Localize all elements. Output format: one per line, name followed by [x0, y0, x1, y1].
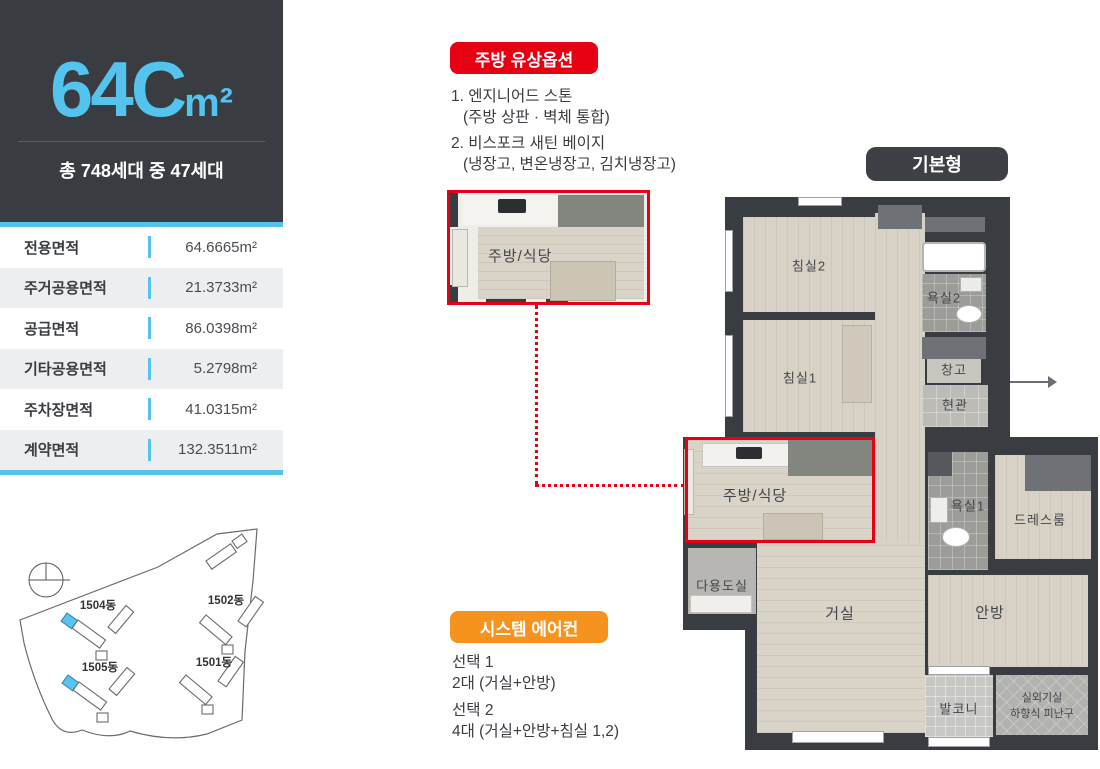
- washer: [690, 595, 752, 613]
- area-label: 주차장면적: [24, 399, 134, 420]
- option-title: 2. 비스포크 새틴 베이지: [451, 133, 676, 154]
- hallway-floor: [875, 213, 925, 439]
- building-label: 1504동: [80, 599, 117, 612]
- area-label: 주거공용면적: [24, 277, 134, 298]
- living-floor: [757, 543, 925, 733]
- building-footprint: [200, 615, 232, 645]
- building-footprint: [206, 544, 236, 569]
- site-plan-svg: 1504동 1502동 1505동: [10, 523, 272, 763]
- unit-subtitle: 총 748세대 중 47세대: [0, 157, 283, 183]
- table-row: 주차장면적 41.0315m²: [0, 389, 283, 430]
- room-label-escape-hatch: 하향식 피난구: [1010, 705, 1074, 721]
- table-row: 주거공용면적 21.3733m²: [0, 268, 283, 309]
- toilet: [942, 527, 970, 547]
- connector-dotted-vertical: [535, 305, 538, 485]
- area-label: 기타공용면적: [24, 358, 134, 379]
- room-label-bathroom1: 욕실1: [951, 496, 985, 515]
- compass-icon: [29, 563, 70, 597]
- building-cluster-1504: [61, 606, 134, 660]
- option-title: 1. 엔지니어드 스톤: [451, 86, 676, 107]
- bathroom1-cabinet: [928, 452, 952, 476]
- room-label-master: 안방: [975, 602, 1005, 623]
- option-detail: (냉장고, 변온냉장고, 김치냉장고): [451, 154, 676, 175]
- kitchen-option-item: 2. 비스포크 새틴 베이지 (냉장고, 변온냉장고, 김치냉장고): [451, 133, 676, 175]
- room-label-entrance: 현관: [942, 395, 968, 414]
- title-divider: [18, 141, 265, 142]
- area-label: 전용면적: [24, 237, 134, 258]
- floor-plan: 침실2 침실1 욕실2 창고 현관 주방/식당 다: [680, 197, 1098, 755]
- area-value: 5.2798m²: [151, 360, 283, 377]
- unit-model-suffix: m²: [184, 81, 233, 125]
- window: [725, 230, 733, 292]
- wall: [450, 285, 458, 302]
- building-footprint: [73, 682, 106, 710]
- table-row: 공급면적 86.0398m²: [0, 308, 283, 349]
- area-value: 86.0398m²: [151, 320, 283, 337]
- window: [928, 737, 990, 747]
- site-plan: 1504동 1502동 1505동: [10, 523, 272, 763]
- option-detail: 2대 (거실+안방): [452, 673, 619, 694]
- building-footprint: [180, 675, 212, 705]
- toilet: [956, 305, 982, 323]
- building-label: 1502동: [208, 594, 245, 607]
- refrigerator: [452, 229, 468, 287]
- option-title: 선택 2: [452, 700, 619, 721]
- unit-model: 64Cm²: [0, 44, 283, 135]
- sink: [930, 497, 948, 523]
- area-label: 계약면적: [24, 439, 134, 460]
- bathtub: [922, 242, 986, 272]
- table-row: 기타공용면적 5.2798m²: [0, 349, 283, 390]
- kitchen-option-list: 1. 엔지니어드 스톤 (주방 상판 · 벽체 통합) 2. 비스포크 새틴 베…: [451, 86, 676, 180]
- area-label: 공급면적: [24, 318, 134, 339]
- room-label-bedroom1: 침실1: [783, 368, 817, 387]
- closet: [1025, 455, 1091, 491]
- area-value: 132.3511m²: [151, 441, 283, 458]
- room-label-balcony: 발코니: [940, 699, 979, 718]
- kitchen-option-badge: 주방 유상옵션: [450, 42, 598, 74]
- option-title: 선택 1: [452, 652, 619, 673]
- brochure-page: 64Cm² 총 748세대 중 47세대 전용면적 64.6665m² 주거공용…: [0, 0, 1100, 769]
- aircon-option-item: 선택 2 4대 (거실+안방+침실 1,2): [452, 700, 619, 742]
- building-footprint: [97, 713, 108, 722]
- kitchen-option-item: 1. 엔지니어드 스톤 (주방 상판 · 벽체 통합): [451, 86, 676, 128]
- window: [792, 731, 884, 743]
- master-floor: [928, 575, 1088, 667]
- table-row: 계약면적 132.3511m²: [0, 430, 283, 471]
- area-table: 전용면적 64.6665m² 주거공용면적 21.3733m² 공급면적 86.…: [0, 227, 283, 470]
- window: [798, 197, 842, 206]
- accent-bar-bottom: [0, 470, 283, 475]
- plan-type-badge: 기본형: [866, 147, 1008, 181]
- room-label-bathroom2: 욕실2: [927, 288, 961, 307]
- building-footprint: [72, 620, 105, 648]
- entrance-arrow: [1010, 381, 1050, 383]
- aircon-option-item: 선택 1 2대 (거실+안방): [452, 652, 619, 694]
- wardrobe: [878, 205, 922, 229]
- window: [928, 666, 990, 675]
- wardrobe: [925, 217, 985, 232]
- room-label-kitchen-inset: 주방/식당: [488, 245, 552, 266]
- storage-cabinet: [922, 337, 986, 359]
- hallway-floor: [875, 437, 925, 543]
- building-footprint: [96, 651, 107, 660]
- room-label-storage: 창고: [941, 360, 967, 379]
- connector-dotted-horizontal: [535, 484, 685, 487]
- room-label-living: 거실: [825, 603, 855, 624]
- option-detail: 4대 (거실+안방+침실 1,2): [452, 721, 619, 742]
- window: [725, 335, 733, 417]
- unit-title-box: 64Cm² 총 748세대 중 47세대: [0, 0, 283, 222]
- room-label-bedroom2: 침실2: [792, 256, 826, 275]
- entrance-arrow-head: [1048, 376, 1057, 388]
- room-label-utility: 다용도실: [696, 576, 748, 595]
- area-value: 21.3733m²: [151, 279, 283, 296]
- option-detail: (주방 상판 · 벽체 통합): [451, 107, 676, 128]
- table-row: 전용면적 64.6665m²: [0, 227, 283, 268]
- building-footprint: [222, 645, 233, 654]
- sink: [960, 277, 982, 292]
- kitchen-detail-inset: 주방/식당: [447, 190, 650, 305]
- building-label: 1501동: [196, 656, 233, 669]
- room-label-outdoor-unit: 실외기실: [1022, 689, 1062, 705]
- area-value: 64.6665m²: [151, 239, 283, 256]
- building-footprint: [232, 534, 247, 548]
- area-value: 41.0315m²: [151, 401, 283, 418]
- building-footprint: [202, 705, 213, 714]
- building-cluster-1505: [62, 668, 135, 722]
- wall: [450, 193, 458, 227]
- building-label: 1505동: [82, 661, 119, 674]
- aircon-option-list: 선택 1 2대 (거실+안방) 선택 2 4대 (거실+안방+침실 1,2): [452, 652, 619, 748]
- unit-model-name: 64C: [50, 45, 184, 133]
- room-label-dressroom: 드레스룸: [1014, 510, 1066, 529]
- kitchen-highlight-box: [685, 437, 875, 543]
- aircon-option-badge: 시스템 에어컨: [450, 611, 608, 643]
- dining-table: [550, 261, 616, 301]
- bed: [842, 325, 872, 403]
- stove-icon: [498, 199, 526, 213]
